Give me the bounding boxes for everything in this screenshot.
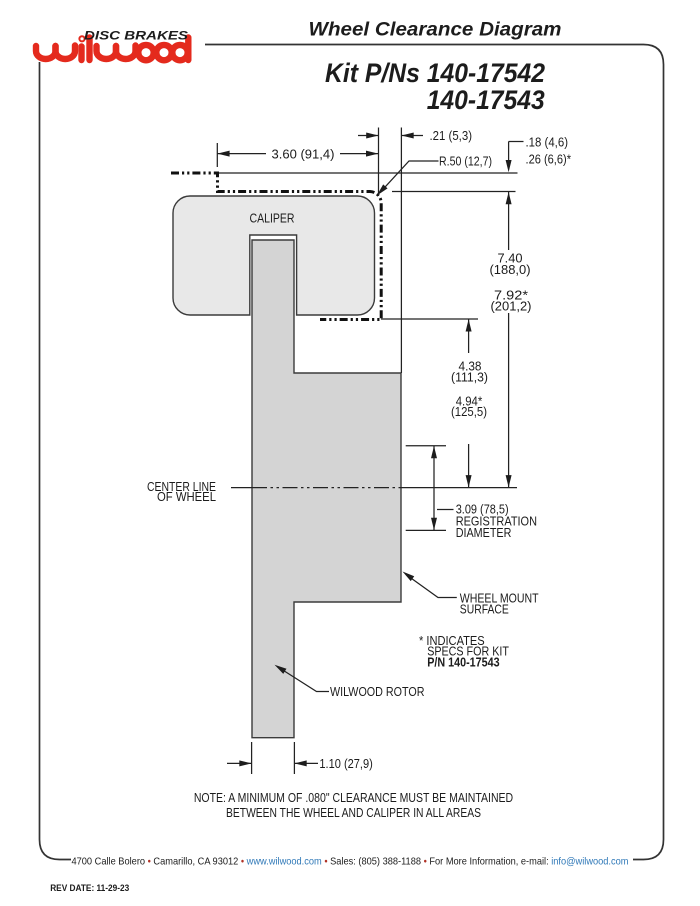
svg-text:(188,0): (188,0) <box>490 263 531 277</box>
svg-text:(125,5): (125,5) <box>451 405 487 419</box>
svg-text:4700 Calle Bolero • Camarillo,: 4700 Calle Bolero • Camarillo, CA 93012 … <box>72 857 629 868</box>
svg-text:OF WHEEL: OF WHEEL <box>157 490 216 504</box>
svg-text:(201,2): (201,2) <box>491 300 532 314</box>
svg-text:.26 (6,6)*: .26 (6,6)* <box>526 153 572 167</box>
svg-text:SURFACE: SURFACE <box>460 603 509 617</box>
svg-text:NOTE: A MINIMUM OF .080" CLEAR: NOTE: A MINIMUM OF .080" CLEARANCE MUST … <box>194 790 513 805</box>
svg-text:.21 (5,3): .21 (5,3) <box>430 129 473 143</box>
svg-text:Kit P/Ns 140-17542: Kit P/Ns 140-17542 <box>325 58 545 88</box>
svg-text:REV DATE: 11-29-23: REV DATE: 11-29-23 <box>50 883 129 893</box>
svg-text:140-17543: 140-17543 <box>427 85 545 115</box>
svg-text:DIAMETER: DIAMETER <box>456 526 512 540</box>
svg-text:DISC BRAKES: DISC BRAKES <box>84 29 188 43</box>
svg-text:1.10 (27,9): 1.10 (27,9) <box>319 757 372 771</box>
svg-text:.18 (4,6): .18 (4,6) <box>526 136 569 150</box>
svg-text:R.50 (12,7): R.50 (12,7) <box>439 155 492 169</box>
svg-text:BETWEEN THE WHEEL AND CALIPER: BETWEEN THE WHEEL AND CALIPER IN ALL ARE… <box>226 805 481 820</box>
svg-text:P/N 140-17543: P/N 140-17543 <box>427 656 499 670</box>
svg-text:3.60 (91,4): 3.60 (91,4) <box>272 148 335 162</box>
svg-text:Wheel Clearance Diagram: Wheel Clearance Diagram <box>309 19 562 41</box>
svg-text:(111,3): (111,3) <box>451 371 488 385</box>
svg-text:CALIPER: CALIPER <box>250 212 295 226</box>
svg-text:WILWOOD ROTOR: WILWOOD ROTOR <box>330 685 425 699</box>
